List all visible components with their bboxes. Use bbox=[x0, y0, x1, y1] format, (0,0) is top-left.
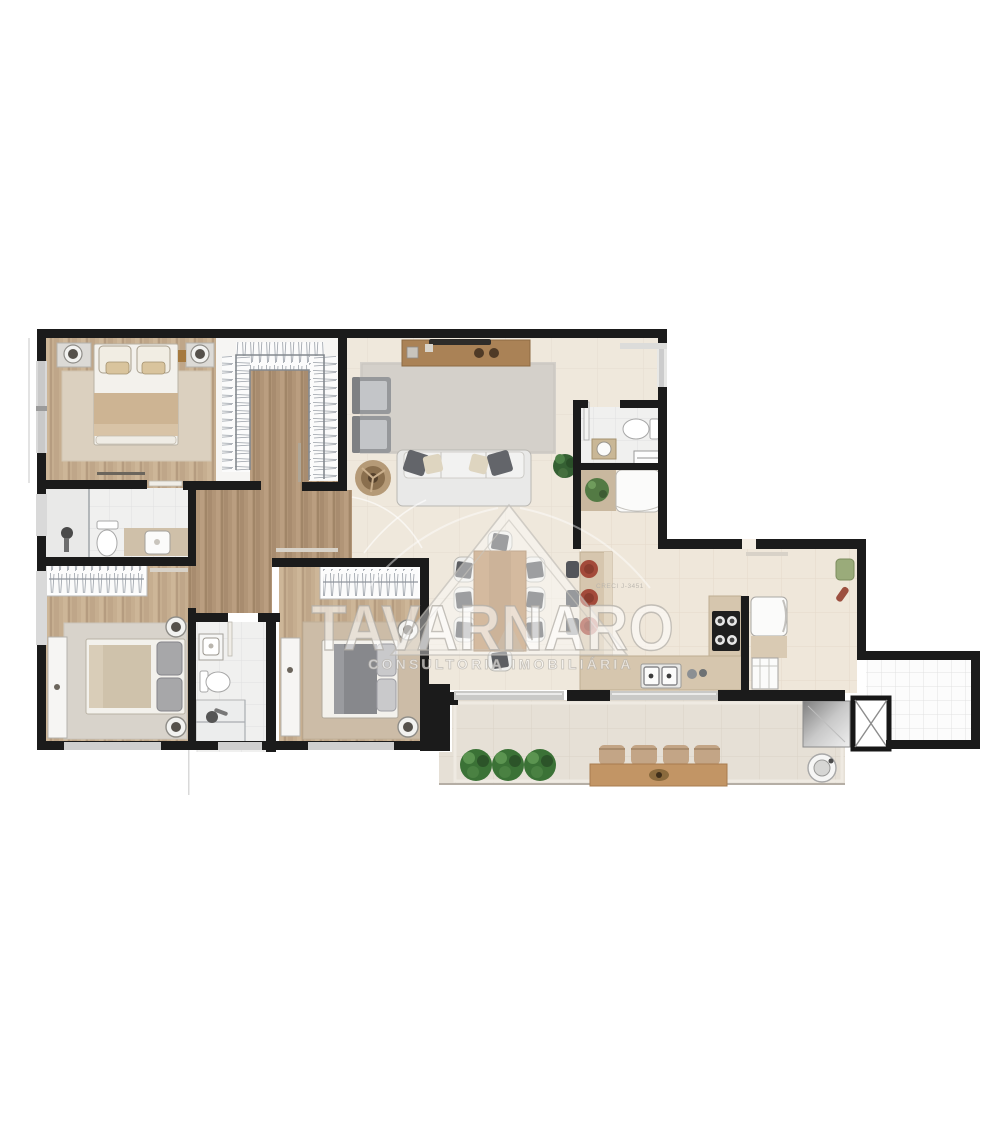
svg-text:TAVARNARO: TAVARNARO bbox=[311, 592, 674, 663]
svg-text:CRECI J-3451: CRECI J-3451 bbox=[596, 583, 644, 590]
svg-text:CONSULTORIA IMOBILIÁRIA: CONSULTORIA IMOBILIÁRIA bbox=[368, 656, 633, 672]
